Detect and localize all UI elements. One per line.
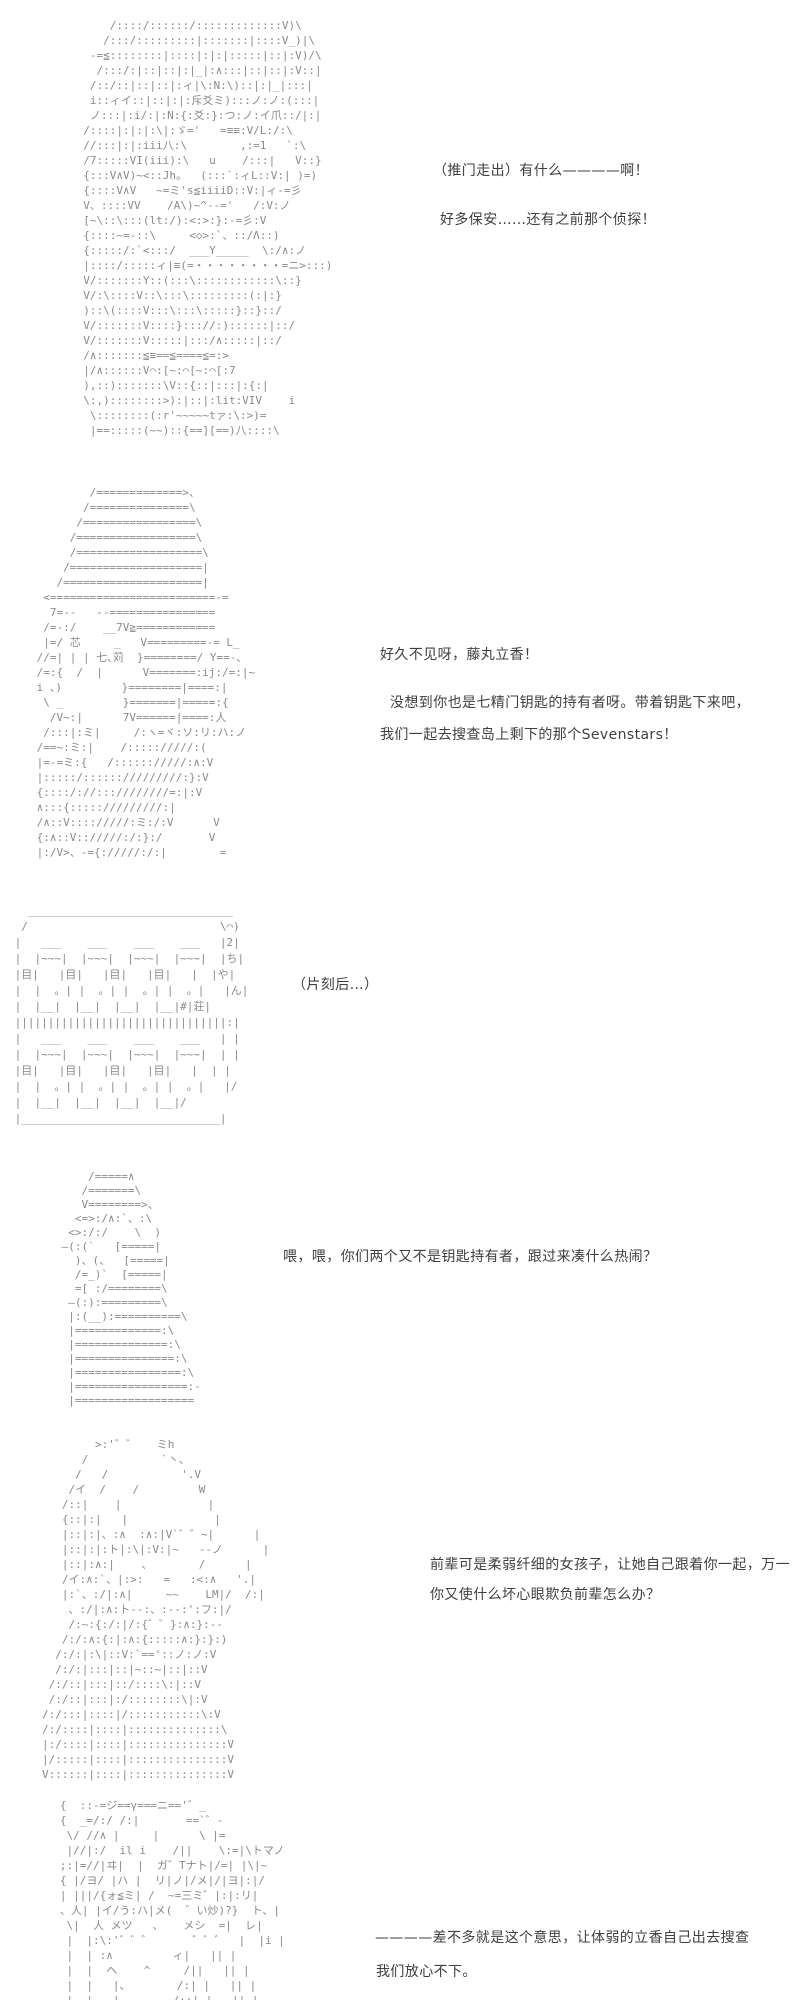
- dialogue-line: ————差不多就是这个意思，让体弱的立香自己出去搜查: [375, 1929, 749, 1947]
- dialogue-line: 喂，喂，你们两个又不是钥匙持有者，跟过来凑什么热闹？: [283, 1248, 657, 1266]
- dialogue-line: 好多保安……还有之前那个侦探！: [440, 211, 656, 229]
- dialogue-line: 前辈可是柔弱纤细的女孩子，让她自己跟着你一起，万一: [430, 1556, 790, 1574]
- ascii-art-detective: /=============>、 /===============\ /====…: [30, 485, 255, 860]
- dialogue-line: （片刻后…）: [292, 976, 378, 994]
- ascii-art-bottom-figure: { ::-=ジ==γ===ニ=='゛_ { _=/:/ /:| ==`゛- \/…: [40, 1798, 285, 2000]
- dialogue-line: 我们放心不下。: [376, 1963, 477, 1981]
- dialogue-line: 没想到你也是七精门钥匙的持有者呀。带着钥匙下来吧，: [390, 694, 750, 712]
- dialogue-line: （推门走出）有什么————啊！: [433, 162, 649, 180]
- ascii-art-story-page: /::::/::::::/:::::::::::::V)\ /:::/:::::…: [0, 0, 800, 2000]
- ascii-art-surprised-girl: /::::/::::::/:::::::::::::V)\ /:::/:::::…: [70, 18, 332, 438]
- ascii-art-apartment-building: _______________________________ / \⌒) | …: [8, 903, 248, 1127]
- ascii-art-small-caped-figure: /=====∧ /=======\ V========>、 <=>:/∧:`、:…: [55, 1170, 201, 1408]
- dialogue-line: 好久不见呀，藤丸立香！: [380, 646, 538, 664]
- dialogue-line: 我们一起去搜查岛上剩下的那个Sevenstars！: [380, 726, 678, 744]
- ascii-art-longhaired-girl: >:'゛゛ ミh / `丶、 / / '.V /イ / / W /::| | |…: [42, 1437, 269, 1782]
- dialogue-line: 你又使什么坏心眼欺负前辈怎么办？: [430, 1586, 660, 1604]
